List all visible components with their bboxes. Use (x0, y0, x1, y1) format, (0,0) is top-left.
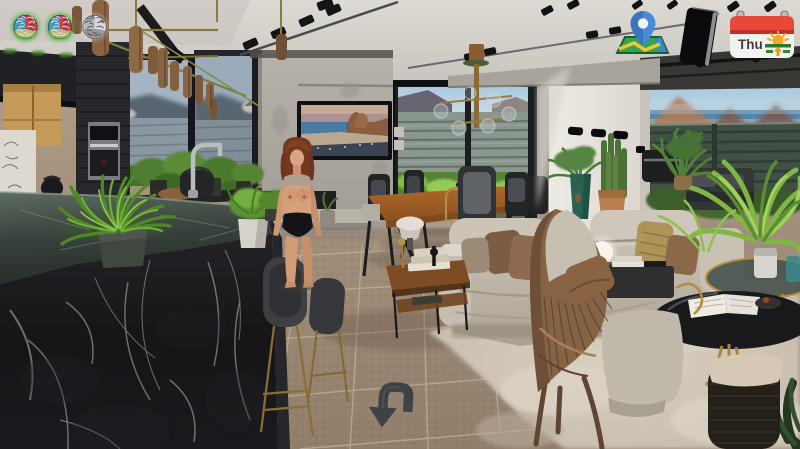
svg-text:Thu: Thu (738, 37, 763, 52)
